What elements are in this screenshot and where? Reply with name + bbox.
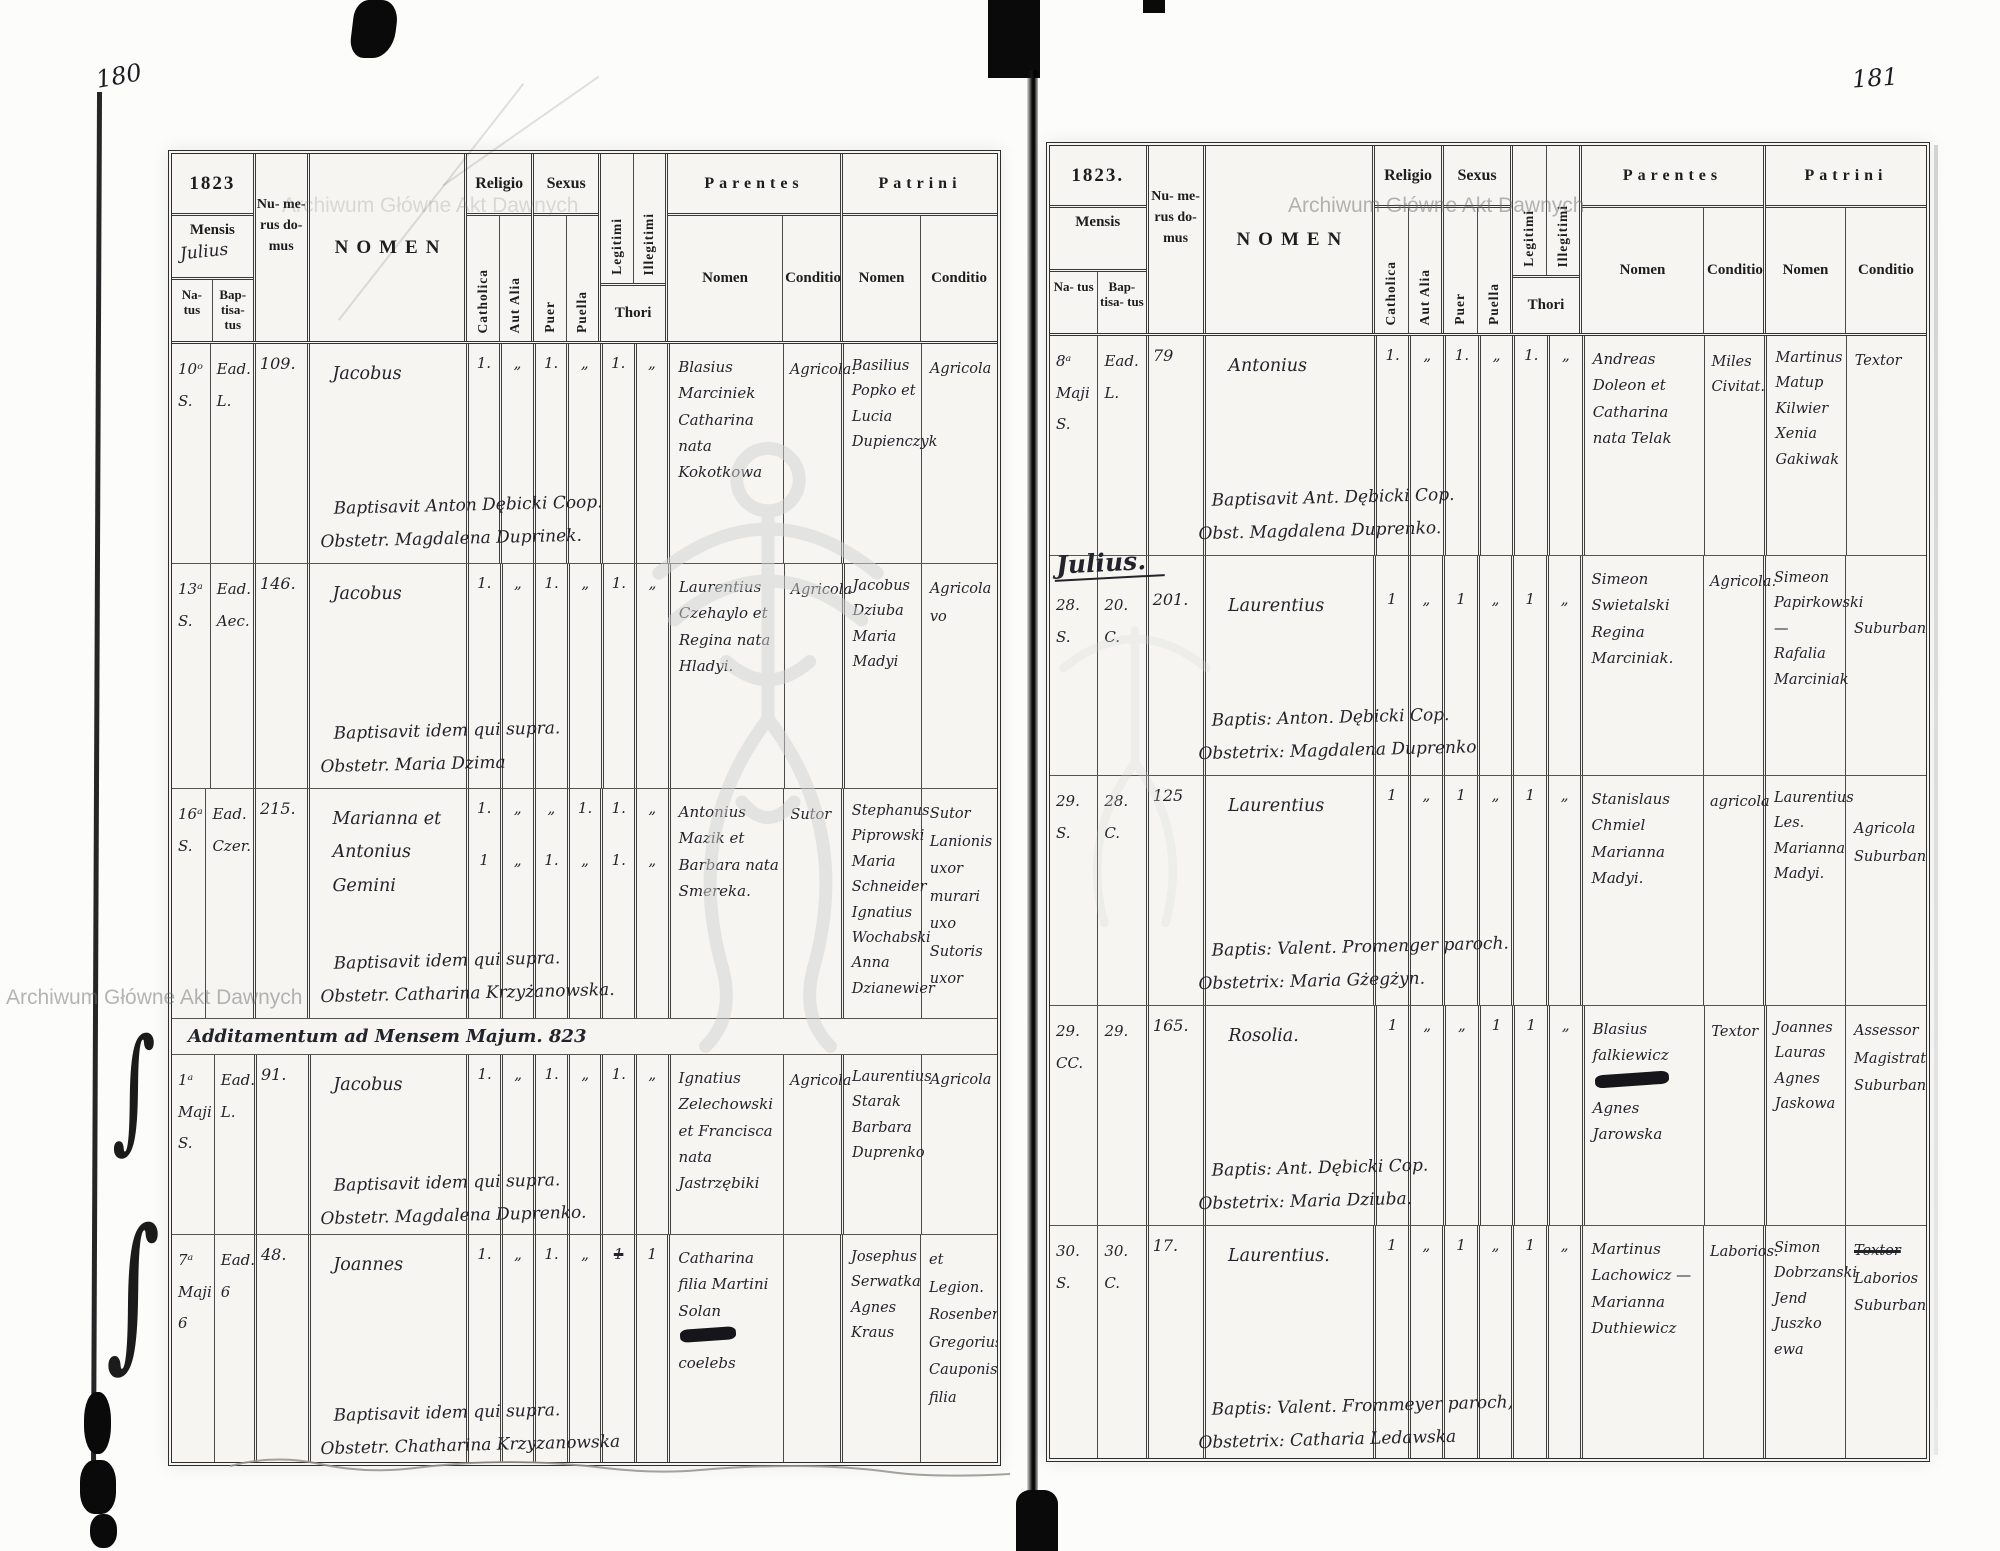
godparents-condition: Suburbana [1846, 556, 1926, 775]
date-cell: 28.S. 20.C. [1050, 556, 1149, 775]
date-cell: 1ᵃMajiS. Ead.L. [172, 1055, 257, 1234]
godparents-names: Joannes Lauras Agnes Jaskowa [1767, 1006, 1846, 1225]
godparents-condition: et Legion. Rosenberg Gregorius Cauponis … [921, 1235, 997, 1466]
natus-value: 30.S. [1050, 1226, 1098, 1462]
column-sex: Sexus Puer Puella [1444, 146, 1513, 333]
margin-brace: ∫ [106, 1207, 160, 1373]
date-cell: 29.S. 28.C. [1050, 776, 1149, 1005]
register-page-right: 1823. Mensis Na- tus Bap- tisa- tus Nu- … [1046, 142, 1930, 1462]
binding-damage [90, 1514, 117, 1548]
baptism-note: Baptisavit idem qui supra.Obstetr. Magda… [319, 1158, 820, 1236]
natus-baptisatus-header: Na- tus Bap- tisa- tus [172, 280, 253, 341]
table-row: 13ᵃS. Ead.Aec. 146. Jacobus 1. „ 1. „ 1.… [172, 564, 997, 789]
date-cell: 7ᵃMaji6 Ead.6 [172, 1235, 257, 1466]
baptisatus-label: Bap- tisa- tus [213, 280, 253, 341]
godparents-names: Stephanus Piprowski Maria Schneider Igna… [844, 789, 922, 1018]
baptism-note: Baptis: Anton. Dębicki Cop.Obstetrix: Ma… [1197, 693, 1698, 771]
book-spine-gap [1027, 70, 1038, 1500]
godparents-condition: Agricola [922, 344, 997, 563]
pencil-line [230, 1446, 1010, 1480]
godparents-names: Jacobus Dziuba Maria Madyi [845, 564, 922, 788]
natus-value: 29.S. [1050, 776, 1098, 1005]
table-row: 30.S. 30.C. 17. Laurentius. 1 „ 1 „ 1 „ … [1050, 1226, 1926, 1462]
baptisatus-value: 30.C. [1098, 1226, 1145, 1462]
table-row: 8ᵃMajiS. Ead.L. 79 Antonius 1. „ 1. „ 1.… [1050, 336, 1926, 556]
house-number: 215. [256, 789, 310, 1018]
godparents-condition-extra: Laborios Suburban. [1854, 1266, 1924, 1321]
ink-speck-top [1143, 0, 1165, 13]
puella-header: Puella [567, 216, 598, 341]
natus-value: 16ᵃS. [172, 789, 206, 1018]
godparents-names: Basilius Popko et Lucia Dupienczyk [844, 344, 922, 563]
column-parents: Parentes Nomen Conditio [668, 154, 843, 341]
binding-damage [84, 1392, 111, 1454]
baptisatus-label: Bap- tisa- tus [1098, 272, 1145, 333]
house-number: 146. [256, 564, 310, 788]
column-date: 1823. Mensis Na- tus Bap- tisa- tus [1050, 146, 1149, 333]
margin-brace: ∫ [112, 1021, 156, 1155]
godparents-names: Laurentius Les. Marianna Madyi. [1766, 776, 1846, 1005]
baptisatus-value: Ead.L. [215, 1055, 257, 1234]
aut-alia-header: Aut Alia [1409, 208, 1441, 333]
baptisatus-value: 29. [1098, 1006, 1145, 1225]
column-godparents: Patrini Nomen Conditio [1766, 146, 1926, 333]
godparents-condition: Textor [1847, 336, 1926, 555]
date-cell: 8ᵃMajiS. Ead.L. [1050, 336, 1149, 555]
religio-label: Religio [467, 154, 531, 216]
month-label: Mensis [1050, 208, 1146, 272]
aut-alia-header: Aut Alia [500, 216, 531, 341]
page-number-left: 180 [94, 58, 144, 94]
ink-blot [1594, 1070, 1669, 1088]
baptism-note: Baptisavit Anton Dębicki Coop.Obstetr. M… [319, 481, 820, 559]
page-edge-right [1934, 145, 1938, 1455]
binding-damage [80, 1460, 116, 1514]
column-name: NOMEN [1206, 146, 1375, 333]
godparents-condition: Agricola vo [922, 564, 997, 788]
table-header: 1823 Mensis Julius Na- tus Bap- tisa- tu… [172, 154, 997, 344]
column-date: 1823 Mensis Julius Na- tus Bap- tisa- tu… [172, 154, 256, 341]
page-edge-left [91, 92, 102, 1477]
baptism-note: Baptis: Valent. Frommeyer paroch,Obstetr… [1197, 1382, 1698, 1460]
parents-names-extra: coelebs [678, 1354, 735, 1372]
handwritten-month: Julius [179, 240, 229, 265]
godparents-condition: Assessor Magistratual Suburban. [1846, 1006, 1926, 1225]
baptism-note: Baptisavit Ant. Dębicki Cop.Obst. Magdal… [1197, 473, 1698, 551]
natus-baptisatus-header: Na- tus Bap- tisa- tus [1050, 272, 1146, 333]
date-cell: 16ᵃS. Ead.Czer. [172, 789, 256, 1018]
thori-label: Thori [1513, 278, 1579, 333]
year-label: 1823 [172, 154, 253, 216]
nomen-label: NOMEN [1228, 229, 1349, 251]
baptisatus-value: Ead.Czer. [206, 789, 253, 1018]
parents-nomen-label: Nomen [1582, 208, 1704, 333]
house-number: 91. [257, 1055, 311, 1234]
thori-label: Thori [601, 286, 665, 341]
parents-conditio-label: Conditio [783, 216, 843, 341]
natus-value: 7ᵃMaji6 [172, 1235, 215, 1466]
natus-value: 1ᵃMajiS. [172, 1055, 215, 1234]
parentes-label: Parentes [668, 154, 840, 216]
scanned-register-spread: 180 181 Archiwum Główne Akt Dawnych Arch… [0, 0, 2000, 1551]
godparents-condition: Sutor Lanionis uxor murari uxo Sutoris u… [922, 789, 997, 1018]
baptism-note: Baptis: Valent. Promenger paroch.Obstetr… [1197, 923, 1698, 1001]
baptisatus-value: 28.C. [1098, 776, 1145, 1005]
baptism-note: Baptis: Ant. Dębicki Cop.Obstetrix: Mari… [1197, 1143, 1698, 1221]
baptism-note: Baptisavit idem qui supra.Obstetr. Maria… [319, 706, 820, 784]
godparents-condition: Agricola Suburbani. [1846, 776, 1926, 1005]
month-section-heading: Julius. [1053, 545, 1164, 582]
legitimi-header: Legitimi [601, 154, 633, 283]
parents-conditio-label: Conditio [1704, 208, 1766, 333]
parents-nomen-label: Nomen [668, 216, 783, 341]
catholica-header: Catholica [1375, 208, 1408, 333]
month-label: Mensis Julius [172, 216, 253, 280]
mensis-label: Mensis [190, 222, 235, 238]
natus-value: 8ᵃMajiS. [1050, 336, 1098, 555]
date-cell: 30.S. 30.C. [1050, 1226, 1149, 1462]
natus-value: 28.S. [1050, 556, 1098, 775]
godparents-conditio-label: Conditio [921, 216, 997, 341]
column-religion: Religio Catholica Aut Alia [1375, 146, 1444, 333]
mensis-label: Mensis [1075, 214, 1120, 230]
godparents-condition: TextorLaborios Suburban. [1846, 1226, 1926, 1462]
section-heading: Additamentum ad Mensem Majum. 823 [172, 1019, 997, 1055]
godparents-nomen-label: Nomen [1766, 208, 1846, 333]
page-number-right: 181 [1851, 62, 1899, 93]
patrini-label: Patrini [1766, 146, 1926, 208]
year-label: 1823. [1050, 146, 1146, 208]
religio-label: Religio [1375, 146, 1441, 208]
catholica-header: Catholica [467, 216, 499, 341]
sexus-label: Sexus [1444, 146, 1510, 208]
puer-header: Puer [1444, 208, 1477, 333]
column-parents: Parentes Nomen Conditio [1582, 146, 1766, 333]
table-row: 29.CC. 29. 165. Rosolia. 1 „ „ 1 1 „ Bla… [1050, 1006, 1926, 1226]
baptism-note: Baptisavit idem qui supra.Obstetr. Catha… [319, 936, 820, 1014]
natus-label: Na- tus [172, 280, 213, 341]
legitimi-header: Legitimi [1513, 146, 1546, 275]
godparents-names: Martinus Matup Kilwier Xenia Gakiwak [1767, 336, 1846, 555]
column-house-number: Nu- me- rus do- mus [256, 154, 310, 341]
house-number: 48. [257, 1235, 311, 1466]
register-page-left: 1823 Mensis Julius Na- tus Bap- tisa- tu… [168, 150, 1001, 1466]
natus-value: 13ᵃS. [172, 564, 211, 788]
baptisatus-value: Ead.L. [1098, 336, 1145, 555]
puer-header: Puer [534, 216, 566, 341]
book-spine-top [988, 0, 1040, 78]
godparents-names: Simon Dobrzanski Jend Juszko ewa [1766, 1226, 1846, 1462]
column-religion: Religio Catholica Aut Alia [467, 154, 534, 341]
illegitimi-header: Illegitimi [634, 154, 665, 283]
parentes-label: Parentes [1582, 146, 1763, 208]
illegitimi-header: Illegitimi [1547, 146, 1579, 275]
godparents-conditio-label: Conditio [1846, 208, 1926, 333]
table-row: 29.S. 28.C. 125 Laurentius 1 „ 1 „ 1 „ S… [1050, 776, 1926, 1006]
puella-header: Puella [1478, 208, 1510, 333]
date-cell: 13ᵃS. Ead.Aec. [172, 564, 256, 788]
godparents-names: Laurentius Starak Barbara Duprenko [844, 1055, 922, 1234]
ink-blot [680, 1326, 737, 1343]
parents-condition: Laborios. [1704, 1226, 1766, 1462]
parents-condition: Agricola. [1704, 556, 1766, 775]
date-cell: 10ᵒS. Ead.L. [172, 344, 256, 563]
table-row: 10ᵒS. Ead.L. 109. Jacobus 1. „ 1. „ 1. „… [172, 344, 997, 564]
natus-value: 29.CC. [1050, 1006, 1098, 1225]
baptisatus-value: 20.C. [1098, 556, 1145, 775]
baptisatus-value: Ead.L. [211, 344, 253, 563]
parents-names-extra: Agnes Jarowska [1593, 1099, 1663, 1143]
column-house-number: Nu- me- rus do- mus [1149, 146, 1206, 333]
godparents-condition: Agricola [922, 1055, 997, 1234]
table-header: 1823. Mensis Na- tus Bap- tisa- tus Nu- … [1050, 146, 1926, 336]
column-sex: Sexus Puer Puella [534, 154, 601, 341]
column-godparents: Patrini Nomen Conditio [843, 154, 997, 341]
parents-condition: Textor [1705, 1006, 1766, 1225]
godparents-nomen-label: Nomen [843, 216, 921, 341]
book-spine-bottom [1016, 1490, 1058, 1551]
table-row: 16ᵃS. Ead.Czer. 215. Marianna et Antoniu… [172, 789, 997, 1019]
baptisatus-value: Ead.6 [215, 1235, 257, 1466]
column-legitimacy: Legitimi Illegitimi Thori [1513, 146, 1582, 333]
godparents-names: Josephus Serwatka Agnes Kraus [843, 1235, 921, 1466]
ink-smudge-top [348, 0, 399, 58]
godparents-names: Simeon Papirkowski — Rafalia Marciniak [1766, 556, 1846, 775]
table-row: 7ᵃMaji6 Ead.6 48. Joannes 1. „ 1. „ 1 1 … [172, 1235, 997, 1466]
natus-value: 10ᵒS. [172, 344, 211, 563]
house-number: 109. [256, 344, 310, 563]
patrini-label: Patrini [843, 154, 997, 216]
parents-condition: Miles Civitat. [1705, 336, 1767, 555]
date-cell: 29.CC. 29. [1050, 1006, 1149, 1225]
natus-label: Na- tus [1050, 272, 1098, 333]
table-row: 1ᵃMajiS. Ead.L. 91. Jacobus 1. „ 1. „ 1.… [172, 1055, 997, 1235]
sexus-label: Sexus [534, 154, 598, 216]
parents-condition: agricola [1704, 776, 1766, 1005]
table-row: Julius. 28.S. 20.C. 201. Laurentius 1 „ … [1050, 556, 1926, 776]
baptisatus-value: Ead.Aec. [211, 564, 253, 788]
column-legitimacy: Legitimi Illegitimi Thori [601, 154, 668, 341]
